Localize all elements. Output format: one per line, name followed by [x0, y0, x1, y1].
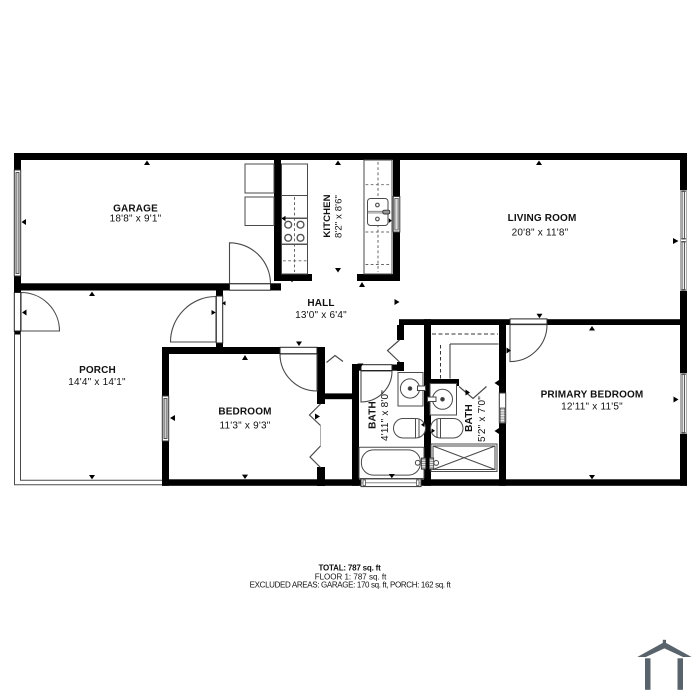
- svg-text:18'8" x 9'1": 18'8" x 9'1": [110, 214, 162, 225]
- svg-text:8'2" x 8'6": 8'2" x 8'6": [334, 195, 345, 238]
- svg-text:KITCHEN: KITCHEN: [322, 194, 333, 237]
- svg-text:13'0" x 6'4": 13'0" x 6'4": [295, 310, 347, 321]
- svg-text:TOTAL: 787 sq. ft: TOTAL: 787 sq. ft: [318, 564, 381, 573]
- svg-text:HALL: HALL: [307, 298, 334, 309]
- svg-text:4'11" x 8'0": 4'11" x 8'0": [380, 390, 391, 441]
- svg-text:BATH: BATH: [464, 404, 475, 432]
- svg-text:PRIMARY BEDROOM: PRIMARY BEDROOM: [541, 390, 644, 401]
- svg-text:11'3" x 9'3": 11'3" x 9'3": [220, 420, 271, 431]
- svg-text:PORCH: PORCH: [79, 365, 116, 376]
- svg-text:20'8" x 11'8": 20'8" x 11'8": [512, 228, 569, 239]
- svg-text:LIVING ROOM: LIVING ROOM: [508, 213, 577, 224]
- svg-text:12'11" x 11'5": 12'11" x 11'5": [561, 402, 623, 413]
- svg-text:BEDROOM: BEDROOM: [218, 407, 271, 418]
- svg-text:BATH: BATH: [368, 401, 379, 429]
- svg-text:5'2" x 7'0": 5'2" x 7'0": [477, 396, 488, 442]
- svg-text:EXCLUDED AREAS: GARAGE: 170 sq: EXCLUDED AREAS: GARAGE: 170 sq. ft, PORC…: [250, 581, 452, 590]
- svg-text:14'4" x 14'1": 14'4" x 14'1": [68, 377, 126, 388]
